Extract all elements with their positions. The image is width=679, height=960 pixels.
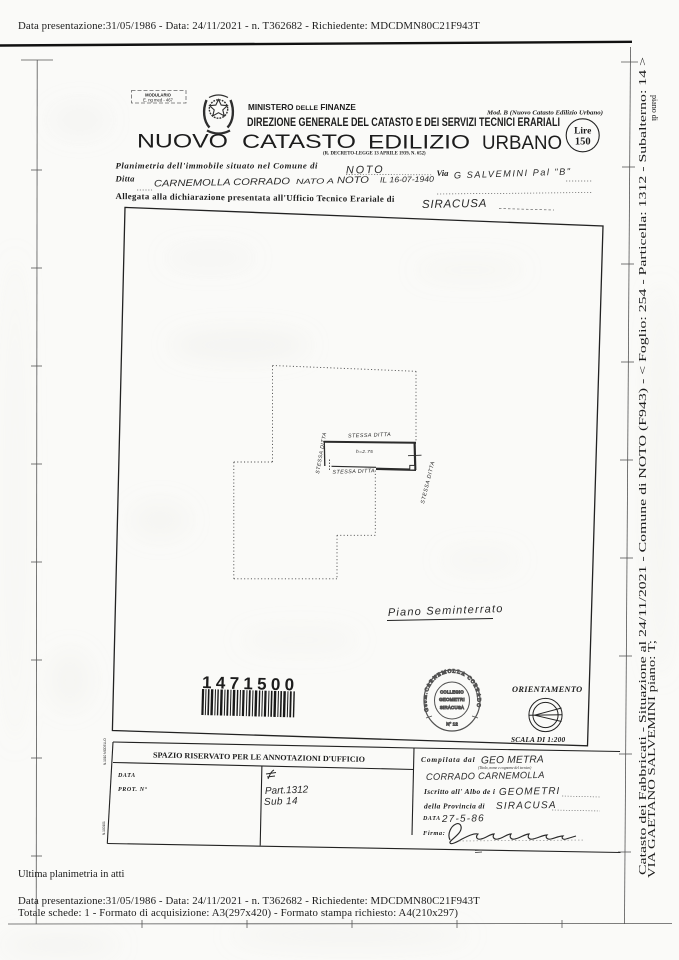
svg-text:Data presentazione:31/05/1986: Data presentazione:31/05/1986 - Data: 24… [18, 895, 480, 907]
svg-text:(R. DECRETO-LEGGE 13 APRILE 19: (R. DECRETO-LEGGE 13 APRILE 1939, N. 652… [323, 152, 426, 157]
svg-text:27-5-86: 27-5-86 [441, 813, 485, 825]
svg-text:CATASTO: CATASTO [242, 132, 356, 153]
svg-text:h=2.75: h=2.75 [356, 449, 373, 455]
svg-text:Data presentazione:31/05/1986: Data presentazione:31/05/1986 - Data: 24… [18, 20, 480, 32]
svg-text:Ultima planimetria in atti: Ultima planimetria in atti [18, 869, 125, 880]
svg-text:Via: Via [437, 168, 450, 178]
svg-text:GEOMETRI: GEOMETRI [439, 697, 465, 702]
svg-text:Part.1312: Part.1312 [265, 784, 309, 797]
svg-text:ORIENTAMENTO: ORIENTAMENTO [512, 685, 582, 694]
svg-text:EDILIZIO: EDILIZIO [368, 132, 470, 153]
svg-text:Iscritto all' Albo de i: Iscritto all' Albo de i [423, 787, 496, 796]
svg-text:Firma:: Firma: [423, 830, 445, 837]
svg-text:N.1010 MODELLO: N.1010 MODELLO [103, 738, 107, 765]
svg-text:COLLEGIO: COLLEGIO [440, 690, 464, 695]
svg-text:MINISTERO DELLE FINANZE: MINISTERO DELLE FINANZE [248, 103, 356, 112]
svg-text:SIRACUSA: SIRACUSA [422, 198, 487, 211]
svg-text:GEO METRA: GEO METRA [481, 754, 544, 766]
svg-text:CORRADO CARNEMOLLA: CORRADO CARNEMOLLA [426, 770, 545, 782]
svg-text:Totale schede: 1 - Formato di: Totale schede: 1 - Formato di acquisizio… [18, 907, 458, 919]
svg-text:URBANO: URBANO [482, 133, 562, 154]
svg-text:VIA GAETANO SALVEMINI piano: T: VIA GAETANO SALVEMINI piano: T; [646, 640, 658, 878]
svg-text:SCALA DI 1:200: SCALA DI 1:200 [511, 735, 565, 744]
svg-text:Planimetria dell'immobile situ: Planimetria dell'immobile situato nel Co… [116, 161, 319, 171]
svg-text:N.100101: N.100101 [102, 821, 106, 835]
svg-text:PROT. N°: PROT. N° [118, 786, 148, 793]
svg-text:Ditta: Ditta [115, 174, 136, 184]
svg-text:150: 150 [575, 137, 591, 148]
svg-text:Lire: Lire [574, 127, 591, 137]
svg-text:piano di: piano di [650, 95, 659, 122]
svg-text:Compilata dal: Compilata dal [421, 755, 476, 764]
svg-text:della Provincia di: della Provincia di [424, 802, 486, 811]
svg-text:DATA: DATA [117, 773, 136, 779]
svg-text:Mod. B (Nuovo Catasto Edilizio: Mod. B (Nuovo Catasto Edilizio Urbano) [486, 110, 603, 117]
svg-text:SIRACUSA: SIRACUSA [440, 705, 464, 710]
svg-text:SIRACUSA: SIRACUSA [496, 800, 557, 812]
svg-text:DIREZIONE GENERALE DEL CATASTO: DIREZIONE GENERALE DEL CATASTO E DEI SER… [247, 115, 560, 129]
svg-text:NUOVO: NUOVO [137, 131, 228, 152]
svg-text:GEOMETRI: GEOMETRI [499, 786, 561, 798]
svg-text:E. ng med - 467: E. ng med - 467 [143, 98, 173, 103]
svg-text:DATA: DATA [422, 816, 441, 822]
svg-text:Sub 14: Sub 14 [264, 796, 298, 808]
svg-text:N° 12: N° 12 [446, 722, 458, 727]
